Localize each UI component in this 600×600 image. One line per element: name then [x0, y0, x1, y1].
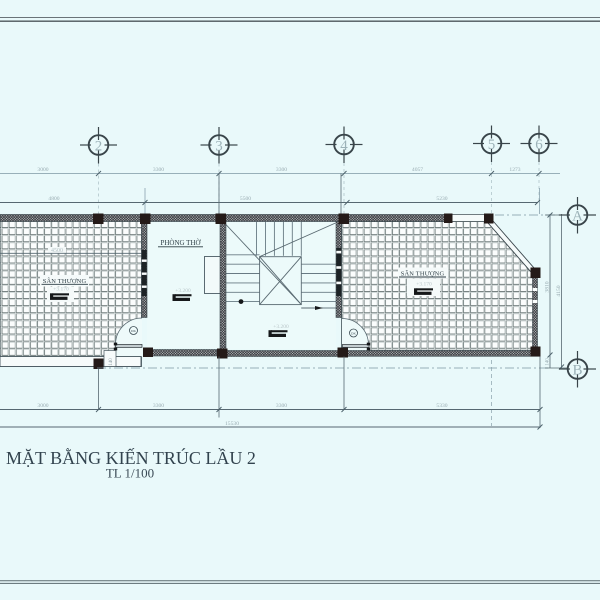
svg-text:+3.170: +3.170 — [53, 287, 69, 293]
svg-text:+3.200: +3.200 — [175, 288, 191, 294]
svg-text:4057: 4057 — [412, 167, 423, 173]
svg-text:4800: 4800 — [48, 196, 59, 202]
svg-text:+3.200: +3.200 — [273, 324, 289, 330]
svg-text:5: 5 — [488, 137, 496, 153]
svg-text:3300: 3300 — [153, 167, 164, 173]
svg-text:1273: 1273 — [509, 167, 520, 173]
svg-text:DK: DK — [351, 332, 356, 336]
svg-text:6: 6 — [535, 137, 543, 153]
svg-text:3300: 3300 — [276, 403, 287, 409]
svg-text:4: 4 — [340, 138, 348, 154]
svg-text:5230: 5230 — [436, 196, 447, 202]
svg-text:3300: 3300 — [276, 167, 287, 173]
svg-text:3: 3 — [215, 139, 223, 155]
svg-text:PHÒNG THỜ: PHÒNG THỜ — [160, 239, 201, 247]
svg-text:4150: 4150 — [556, 285, 562, 296]
svg-text:SÂN THƯỢNG: SÂN THƯỢNG — [401, 270, 445, 278]
svg-text:15530: 15530 — [225, 421, 239, 427]
svg-text:140: 140 — [546, 358, 551, 366]
svg-text:5500: 5500 — [240, 196, 251, 202]
svg-text:3810: 3810 — [545, 281, 551, 292]
svg-text:TL 1/100: TL 1/100 — [106, 466, 154, 481]
svg-text:5330: 5330 — [436, 403, 447, 409]
svg-text:3000: 3000 — [37, 167, 48, 173]
svg-text:3000: 3000 — [37, 403, 48, 409]
svg-text:4500: 4500 — [51, 248, 63, 254]
svg-text:2: 2 — [95, 139, 103, 155]
svg-text:3300: 3300 — [153, 403, 164, 409]
svg-text:DK: DK — [131, 329, 136, 333]
svg-text:SÂN THƯỢNG: SÂN THƯỢNG — [43, 277, 87, 285]
svg-text:+3.170: +3.170 — [416, 282, 432, 288]
svg-text:B: B — [572, 363, 582, 379]
svg-text:A: A — [572, 209, 583, 225]
svg-text:140: 140 — [109, 358, 114, 366]
